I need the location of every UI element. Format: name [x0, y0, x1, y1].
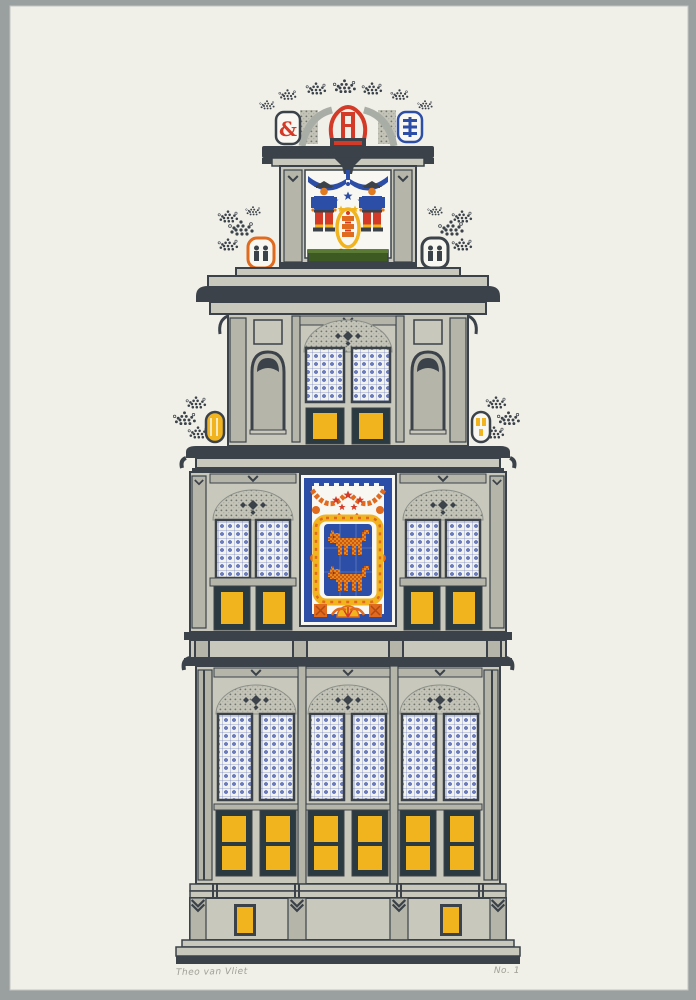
svg-text:&: & — [279, 117, 297, 141]
house-emblem-icon — [472, 412, 490, 442]
pilaster — [450, 318, 466, 442]
pilaster — [230, 318, 246, 442]
facade-illustration: & — [0, 0, 696, 1000]
base-story — [190, 898, 506, 940]
pilaster — [192, 476, 206, 628]
cornice-2 — [182, 446, 515, 472]
entablature — [184, 632, 513, 670]
edition-number: No. 1 — [494, 966, 520, 976]
arched-niche — [410, 352, 446, 434]
bracket-post — [293, 636, 307, 658]
heraldic-panel — [300, 474, 396, 626]
figures-emblem-icon — [248, 238, 274, 268]
pilaster — [490, 476, 504, 628]
pill-emblem-icon — [206, 412, 224, 442]
bracket-post — [195, 636, 209, 658]
main-cornice — [196, 268, 500, 314]
artwork-print: & — [0, 0, 696, 1000]
ladder-emblem-icon — [398, 112, 422, 142]
plinth — [176, 940, 520, 964]
attic-band — [190, 884, 506, 898]
tier-3-story — [190, 472, 506, 632]
lattice-window — [352, 348, 390, 402]
pavilion-pilaster — [284, 170, 302, 262]
tier-4-story — [196, 666, 500, 884]
pavilion-cornice — [262, 146, 434, 158]
figures-emblem-icon — [422, 238, 448, 268]
lattice-window — [306, 348, 344, 402]
artist-signature: Theo van Vliet — [176, 967, 248, 978]
arched-niche — [250, 352, 286, 434]
pavilion-pilaster — [394, 170, 412, 262]
bracket-post — [389, 636, 403, 658]
bracket-post — [487, 636, 501, 658]
ampersand-emblem-icon: & — [276, 112, 300, 144]
